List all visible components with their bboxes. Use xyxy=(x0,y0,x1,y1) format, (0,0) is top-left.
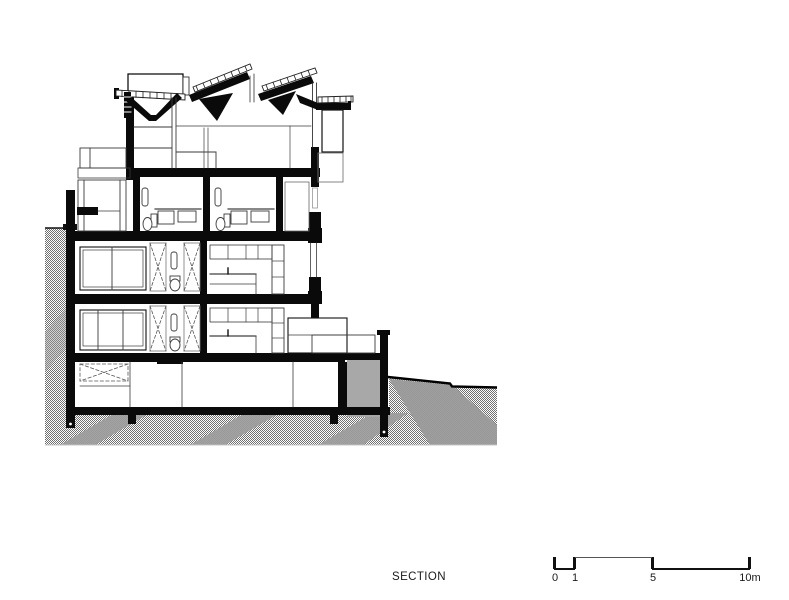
scale-seg-1-5 xyxy=(575,557,652,558)
kitchen-upper xyxy=(210,245,284,294)
skylight-blade-middle xyxy=(189,64,252,121)
section-drawing xyxy=(0,0,789,600)
site-boundary-wall xyxy=(380,333,388,437)
living-floor-lower xyxy=(80,306,375,353)
scale-label-5: 5 xyxy=(650,572,656,584)
scale-label-1: 1 xyxy=(572,572,578,584)
scale-seg-5-10 xyxy=(652,568,750,570)
roof-bar-right xyxy=(296,94,353,110)
bathroom-a-fixtures xyxy=(142,188,201,231)
retaining-wall xyxy=(66,190,75,428)
bathroom-b-fixtures xyxy=(215,188,274,231)
scale-label-0: 0 xyxy=(552,572,558,584)
skylight-blade-right xyxy=(258,68,317,115)
drawing-title: SECTION xyxy=(392,571,446,583)
scale-seg-0-1 xyxy=(554,568,575,570)
roof-skylights xyxy=(114,64,353,147)
drawing-sheet: SECTION 0 1 5 10m xyxy=(0,0,789,600)
building-section xyxy=(66,64,390,437)
rear-extension-rooms xyxy=(288,318,375,353)
basement xyxy=(80,362,293,407)
storage-dashed-box xyxy=(80,364,128,381)
living-floor-upper xyxy=(80,243,317,294)
kitchen-lower xyxy=(210,308,284,353)
scale-label-10: 10m xyxy=(739,572,760,584)
